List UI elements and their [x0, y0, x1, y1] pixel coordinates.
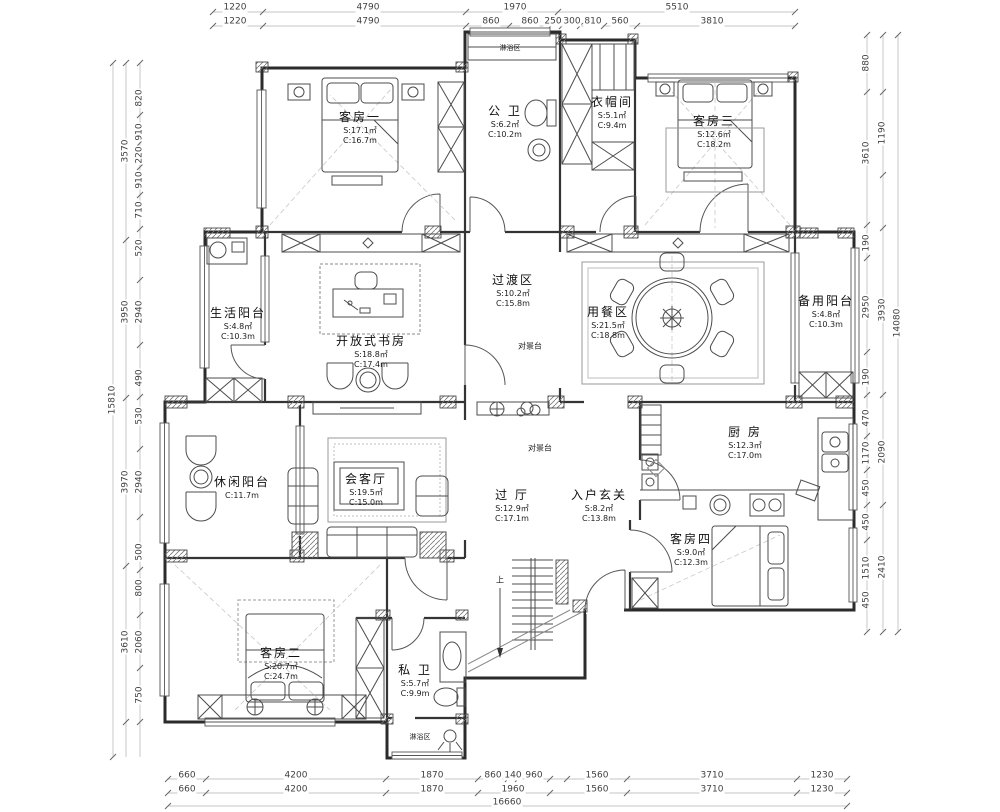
dim-label: 800	[136, 578, 145, 597]
room-label-transition: 过渡区 S:10.2㎡ C:15.8m	[492, 273, 534, 309]
scenery-stand-label: 对景台	[518, 341, 542, 352]
dim-label: 1960	[501, 786, 526, 795]
room-name: 会客厅	[345, 472, 387, 488]
dim-label: 910	[136, 122, 145, 141]
dim-label: 1190	[879, 121, 888, 146]
room-area: S:12.3㎡	[728, 441, 762, 451]
dim-label: 190	[863, 233, 872, 252]
room-label-hall: 过 厅 S:12.9㎡ C:17.1m	[495, 488, 529, 524]
room-area: S:4.8㎡	[210, 322, 266, 332]
room-name: 客房四	[670, 532, 712, 548]
stairs-up-label: 上	[496, 575, 504, 586]
dim-label: 860	[520, 18, 539, 27]
dim-label: 860	[483, 772, 502, 781]
room-perimeter: C:24.7m	[260, 672, 302, 682]
room-perimeter: C:15.8m	[492, 299, 534, 309]
dim-label: 710	[136, 200, 145, 219]
room-name: 客房二	[260, 646, 302, 662]
dim-label: 810	[583, 18, 602, 27]
dim-label-total: 16660	[492, 799, 523, 808]
dim-label: 250	[543, 18, 562, 27]
room-name: 用餐区	[587, 305, 629, 321]
room-area: S:5.1㎡	[591, 111, 633, 121]
dim-label: 1220	[223, 4, 248, 13]
room-label-study: 开放式书房 S:18.8㎡ C:17.4m	[336, 334, 406, 370]
room-label-guest1: 客房一 S:17.1㎡ C:16.7m	[339, 110, 381, 146]
dim-label: 3570	[122, 139, 131, 164]
room-name: 客房三	[693, 114, 735, 130]
dim-label-total: 15810	[109, 385, 118, 416]
dim-label: 3610	[122, 630, 131, 655]
room-label-cloak: 衣帽间 S:5.1㎡ C:9.4m	[591, 95, 633, 131]
room-perimeter: C:15.0m	[345, 498, 387, 508]
dim-label: 860	[481, 18, 500, 27]
dim-label: 2950	[863, 295, 872, 320]
room-area: S:9.0㎡	[670, 548, 712, 558]
dim-label: 4200	[284, 786, 309, 795]
dim-label: 820	[136, 88, 145, 107]
dim-label: 560	[610, 18, 629, 27]
scenery-stand-label: 对景台	[528, 443, 552, 454]
room-area: S:12.6㎡	[693, 130, 735, 140]
room-area: S:18.8㎡	[336, 350, 406, 360]
dim-label: 450	[863, 512, 872, 531]
room-perimeter: C:17.1m	[495, 514, 529, 524]
room-perimeter: C:10.2m	[488, 130, 522, 140]
dim-label: 450	[863, 478, 872, 497]
room-label-reception: 会客厅 S:19.5㎡ C:15.0m	[345, 472, 387, 508]
room-perimeter: C:13.8m	[571, 514, 627, 524]
interior-walls	[165, 40, 853, 722]
room-label-guest4: 客房四 S:9.0㎡ C:12.3m	[670, 532, 712, 568]
room-label-leisure-balcony: 休闲阳台 C:11.7m	[214, 475, 270, 501]
dim-label: 530	[136, 406, 145, 425]
dim-label: 1170	[863, 441, 872, 466]
dim-label: 1970	[503, 4, 528, 13]
room-area: S:8.2㎡	[571, 504, 627, 514]
room-label-kitchen: 厨 房 S:12.3㎡ C:17.0m	[728, 425, 762, 461]
floor-plan-page: 客房一 S:17.1㎡ C:16.7m 公 卫 S:6.2㎡ C:10.2m 衣…	[0, 0, 1000, 812]
dim-label: 3930	[879, 298, 888, 323]
room-name: 开放式书房	[336, 334, 406, 350]
dim-label: 3710	[700, 786, 725, 795]
room-label-life-balcony: 生活阳台 S:4.8㎡ C:10.3m	[210, 306, 266, 342]
dim-label: 1510	[863, 556, 872, 581]
room-perimeter: C:17.4m	[336, 360, 406, 370]
dim-label: 1560	[585, 786, 610, 795]
dim-label: 2940	[136, 470, 145, 495]
room-perimeter: C:11.7m	[214, 491, 270, 501]
room-label-private-bath: 私 卫 S:5.7㎡ C:9.9m	[398, 663, 432, 699]
shower-zone-label: 淋浴区	[410, 732, 431, 742]
room-name: 过 厅	[495, 488, 529, 504]
room-name: 私 卫	[398, 663, 432, 679]
dim-label: 4790	[356, 18, 381, 27]
dim-label: 140	[503, 772, 522, 781]
furniture	[186, 34, 853, 752]
room-label-dining: 用餐区 S:21.5㎡ C:18.8m	[587, 305, 629, 341]
room-area: S:12.9㎡	[495, 504, 529, 514]
room-perimeter: C:18.2m	[693, 140, 735, 150]
dim-label: 3610	[863, 141, 872, 166]
dim-label: 2940	[136, 300, 145, 325]
room-perimeter: C:9.9m	[398, 689, 432, 699]
room-area: S:19.5㎡	[345, 488, 387, 498]
room-label-guest2: 客房二 S:20.7㎡ C:24.7m	[260, 646, 302, 682]
room-area: S:20.7㎡	[260, 662, 302, 672]
dim-label: 880	[863, 53, 872, 72]
room-area: S:17.1㎡	[339, 126, 381, 136]
dim-label: 3970	[122, 470, 131, 495]
shower-zone-label: 淋浴区	[500, 43, 521, 53]
room-name: 休闲阳台	[214, 475, 270, 491]
room-label-guest3: 客房三 S:12.6㎡ C:18.2m	[693, 114, 735, 150]
room-name: 衣帽间	[591, 95, 633, 111]
dim-label: 2060	[136, 630, 145, 655]
dim-label: 960	[524, 772, 543, 781]
dim-label: 1220	[223, 18, 248, 27]
dim-label: 1230	[810, 772, 835, 781]
dim-label: 750	[136, 685, 145, 704]
dim-label-total: 14080	[894, 308, 903, 339]
dashed-guides	[175, 82, 790, 710]
dim-label: 1230	[810, 786, 835, 795]
room-name: 备用阳台	[798, 294, 854, 310]
dim-label: 520	[136, 238, 145, 257]
room-name: 过渡区	[492, 273, 534, 289]
dim-label: 3950	[122, 300, 131, 325]
room-area: S:10.2㎡	[492, 289, 534, 299]
dim-label: 1870	[420, 772, 445, 781]
dim-label: 1870	[420, 786, 445, 795]
room-name: 生活阳台	[210, 306, 266, 322]
dim-label: 2090	[879, 440, 888, 465]
dim-label: 5510	[665, 4, 690, 13]
room-area: S:21.5㎡	[587, 321, 629, 331]
room-perimeter: C:18.8m	[587, 331, 629, 341]
dim-label: 3810	[700, 18, 725, 27]
room-name: 公 卫	[488, 104, 522, 120]
room-area: S:4.8㎡	[798, 310, 854, 320]
dim-label: 4790	[356, 4, 381, 13]
room-name: 入户玄关	[571, 488, 627, 504]
room-name: 客房一	[339, 110, 381, 126]
room-perimeter: C:9.4m	[591, 121, 633, 131]
dim-label: 3710	[700, 772, 725, 781]
room-perimeter: C:10.3m	[798, 320, 854, 330]
dim-label: 470	[863, 408, 872, 427]
room-perimeter: C:10.3m	[210, 332, 266, 342]
room-label-foyer: 入户玄关 S:8.2㎡ C:13.8m	[571, 488, 627, 524]
room-name: 厨 房	[728, 425, 762, 441]
room-label-public-bath: 公 卫 S:6.2㎡ C:10.2m	[488, 104, 522, 140]
dim-label: 190	[863, 367, 872, 386]
room-label-spare-balcony: 备用阳台 S:4.8㎡ C:10.3m	[798, 294, 854, 330]
room-perimeter: C:17.0m	[728, 451, 762, 461]
dim-label: 220	[136, 145, 145, 164]
room-area: S:5.7㎡	[398, 679, 432, 689]
dim-label: 4200	[284, 772, 309, 781]
doors	[231, 184, 748, 650]
dim-label: 300	[562, 18, 581, 27]
room-perimeter: C:16.7m	[339, 136, 381, 146]
dim-label: 910	[136, 170, 145, 189]
dim-label: 660	[177, 786, 196, 795]
dim-label: 450	[863, 590, 872, 609]
dim-label: 500	[136, 542, 145, 561]
dim-label: 490	[136, 368, 145, 387]
room-perimeter: C:12.3m	[670, 558, 712, 568]
dim-label: 660	[177, 772, 196, 781]
room-area: S:6.2㎡	[488, 120, 522, 130]
dim-label: 2410	[879, 555, 888, 580]
dim-label: 1560	[585, 772, 610, 781]
